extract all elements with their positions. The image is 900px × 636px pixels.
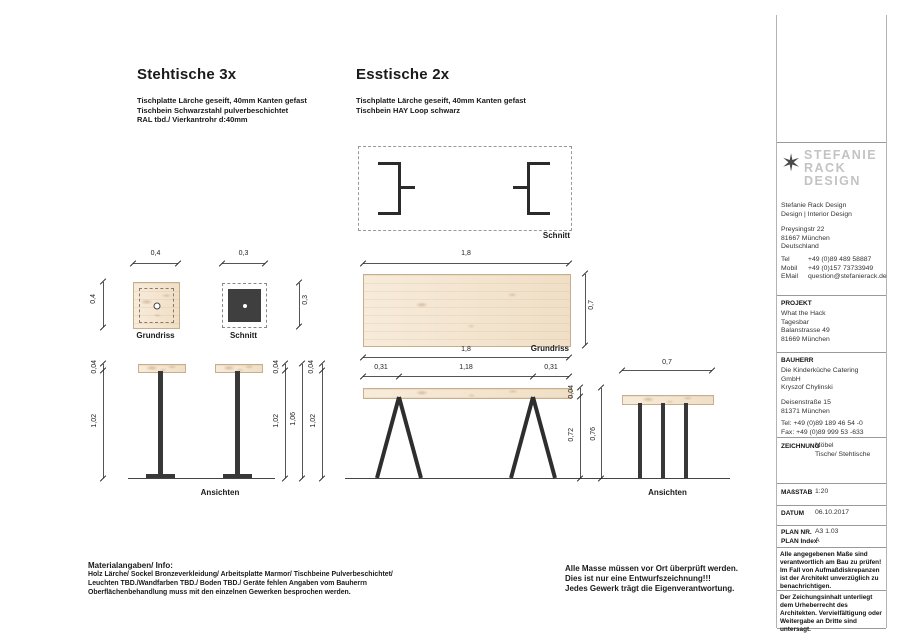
leg-profile-bar <box>401 186 415 189</box>
zeichnung-block: Möbel Tische/ Stehtische <box>815 442 870 459</box>
esstisch-side-top <box>622 395 714 405</box>
planindex-value: A <box>815 537 820 546</box>
bauherr-line: Tel: +49 (0)89 189 46 54 -0 <box>781 420 864 429</box>
notice-line: Jedes Gewerk trägt die Eigenverantwortun… <box>565 584 738 594</box>
dim-st-leg-height: 1,02 <box>273 414 280 428</box>
address-block: Preysingstr 22 81667 München Deutschland <box>781 226 830 252</box>
esstisch-elevation-top <box>363 388 572 399</box>
contact-value: +49 (0)89 489 58887 <box>808 256 871 265</box>
firm-line: Stefanie Rack Design <box>781 202 852 211</box>
address-line: 81667 München <box>781 235 830 244</box>
plannr-value: A3 1.03 <box>815 528 838 537</box>
contact-label: EMail <box>781 273 808 282</box>
notice-block: Alle Masse müssen vor Ort überprüft werd… <box>565 564 738 594</box>
spec-line: RAL tbd./ Vierkantrohr d:40mm <box>137 115 307 125</box>
projekt-line: What the Hack <box>781 310 830 319</box>
projekt-line: Balanstrasse 49 <box>781 327 830 336</box>
firm-line: Design | Interior Design <box>781 211 852 220</box>
esstisch-schnitt-box <box>358 146 572 231</box>
material-info-block: Materialangaben/ Info: Holz Lärche/ Sock… <box>88 561 393 597</box>
dim-st-plan-depth: 0,4 <box>90 294 97 304</box>
dim-line <box>103 364 104 478</box>
material-info-line: Holz Lärche/ Sockel Bronzeverkleidung/ A… <box>88 570 393 579</box>
esstische-specs: Tischplatte Lärche geseift, 40mm Kanten … <box>356 96 526 115</box>
bauherr-label: BAUHERR <box>781 357 814 364</box>
spec-line: Tischbein Schwarzstahl pulverbeschichtet <box>137 106 307 116</box>
dim-line <box>222 263 265 264</box>
titleblock-divider <box>777 352 886 353</box>
schnitt-stehtisch-label: Schnitt <box>198 331 289 340</box>
dim-es-plan-width: 1,8 <box>363 250 569 257</box>
titleblock-border-right <box>886 15 887 628</box>
titleblock-border-left <box>776 15 777 628</box>
titleblock-divider <box>777 437 886 438</box>
leg-profile-bar <box>378 212 401 215</box>
plannr-label: PLAN NR. <box>781 529 812 536</box>
titleblock-divider <box>777 142 886 143</box>
dim-line <box>133 263 178 264</box>
bauherr-line: Die Kinderküche Catering <box>781 367 858 376</box>
dim-line <box>103 282 104 327</box>
dim-es-top-thickness: 0,04 <box>568 385 575 399</box>
bauherr-line: 81371 München <box>781 408 831 417</box>
leg-center-mark <box>153 302 160 309</box>
plan-sheet: Stehtische 3x Tischplatte Lärche geseift… <box>0 0 900 636</box>
logo-star-icon: ✶ <box>781 152 801 176</box>
dim-line <box>363 376 569 377</box>
projekt-block: What the Hack Tagesbar Balanstrasse 49 8… <box>781 310 830 344</box>
leg-profile-bar <box>527 162 550 165</box>
dim-st-total-height: 1,06 <box>290 412 297 426</box>
spec-line: Tischplatte Lärche geseift, 40mm Kanten … <box>356 96 526 106</box>
grundriss-stehtisch-label: Grundriss <box>110 331 201 340</box>
stehtisch-section-fill <box>228 289 261 322</box>
contact-label: Mobil <box>781 265 808 274</box>
stehtisch-leg <box>235 371 240 475</box>
dim-st-leg-height: 1,02 <box>91 414 98 428</box>
bauherr-line: Kryszof Chylinski <box>781 384 858 393</box>
dim-es-leg-height: 0,72 <box>568 428 575 442</box>
dim-st-top-thickness: 0,04 <box>308 360 315 374</box>
esstische-title: Esstische 2x <box>356 66 449 83</box>
stehtisch-section-box <box>222 283 267 328</box>
material-info-line: Leuchten TBD./Wandfarben TBD./ Boden TBD… <box>88 579 393 588</box>
dim-line <box>585 274 586 345</box>
dim-st-plan-width: 0,4 <box>133 250 178 257</box>
dim-es-side-width: 0,7 <box>622 359 712 366</box>
datum-value: 06.10.2017 <box>815 509 849 518</box>
contact-row: Tel +49 (0)89 489 58887 <box>781 256 887 265</box>
massstab-label: MAßSTAB <box>781 489 812 496</box>
stehtisch-plan-top <box>133 282 180 329</box>
ground-line <box>345 478 730 479</box>
dim-es-leg-span: 1,18 <box>399 364 533 371</box>
titleblock-divider <box>777 295 886 296</box>
dim-line <box>363 263 569 264</box>
leg-profile-bar <box>527 212 550 215</box>
bauherr-line: Deisenstraße 15 <box>781 399 831 408</box>
dim-st-sec-width: 0,3 <box>222 250 265 257</box>
logo: STEFANIE RACK DESIGN <box>804 149 877 188</box>
bauherr-block-2: Deisenstraße 15 81371 München <box>781 399 831 416</box>
leg-profile-bar <box>527 162 530 215</box>
projekt-line: 81669 München <box>781 336 830 345</box>
dim-line <box>622 370 712 371</box>
dim-es-total-height: 0,76 <box>590 427 597 441</box>
esstisch-side-leg <box>684 403 688 478</box>
leg-profile-bar <box>513 186 527 189</box>
dim-line <box>580 388 581 478</box>
bauherr-block-1: Die Kinderküche Catering GmbH Kryszof Ch… <box>781 367 858 393</box>
titleblock-divider <box>777 483 886 484</box>
titleblock-divider <box>777 525 886 526</box>
datum-label: DATUM <box>781 510 804 517</box>
bauherr-line: Fax: +49 (0)89 999 53 -633 <box>781 429 864 438</box>
dim-line <box>302 364 303 478</box>
stehtische-specs: Tischplatte Lärche geseift, 40mm Kanten … <box>137 96 307 125</box>
esstisch-side-leg <box>661 403 665 478</box>
dim-st-leg-height: 1,02 <box>310 414 317 428</box>
contact-label: Tel <box>781 256 808 265</box>
contact-row: Mobil +49 (0)157 73733949 <box>781 265 887 274</box>
zeichnung-label: ZEICHNUNG <box>781 443 820 450</box>
contact-row: EMail question@stefanierack.de <box>781 273 887 282</box>
material-info-line: Oberflächenbehandlung muss mit den einze… <box>88 588 393 597</box>
address-line: Preysingstr 22 <box>781 226 830 235</box>
zeichnung-line: Tische/ Stehtische <box>815 451 870 460</box>
esstisch-side-leg <box>638 403 642 478</box>
bauherr-block-3: Tel: +49 (0)89 189 46 54 -0 Fax: +49 (0)… <box>781 420 864 437</box>
titleblock-divider <box>777 547 886 548</box>
leg-center-mark <box>243 304 247 308</box>
dim-st-sec-depth: 0,3 <box>302 295 309 305</box>
notice-line: Dies ist nur eine Entwurfszeichnung!!! <box>565 574 738 584</box>
dim-line <box>322 364 323 478</box>
projekt-line: Tagesbar <box>781 319 830 328</box>
schnitt-top-label: Schnitt <box>470 231 570 240</box>
titleblock-note-2: Der Zeichungsinhalt unterliegt dem Urheb… <box>780 594 886 634</box>
dim-st-top-thickness: 0,04 <box>91 360 98 374</box>
contact-value: +49 (0)157 73733949 <box>808 265 873 274</box>
firm-block: Stefanie Rack Design Design | Interior D… <box>781 202 852 219</box>
dim-es-offset-left: 0,31 <box>363 364 399 371</box>
planindex-label: PLAN Index <box>781 538 817 545</box>
titleblock-divider <box>777 505 886 506</box>
contact-value: question@stefanierack.de <box>808 273 887 282</box>
ansichten-esstisch-label: Ansichten <box>625 488 710 497</box>
grundriss-esstisch-label: Grundriss <box>489 344 569 353</box>
massstab-value: 1:20 <box>815 488 828 497</box>
dim-st-top-thickness: 0,04 <box>273 360 280 374</box>
zeichnung-line: Möbel <box>815 442 870 451</box>
logo-line: DESIGN <box>804 175 877 188</box>
stehtisch-leg <box>158 371 163 475</box>
ground-line <box>128 478 275 479</box>
notice-line: Alle Masse müssen vor Ort überprüft werd… <box>565 564 738 574</box>
material-info-title: Materialangaben/ Info: <box>88 561 393 570</box>
spec-line: Tischplatte Lärche geseift, 40mm Kanten … <box>137 96 307 106</box>
stehtische-title: Stehtische 3x <box>137 66 236 83</box>
dim-line <box>601 388 602 478</box>
dim-line <box>285 364 286 478</box>
titleblock-note-1: Alle angegebenen Maße sind verantwortlic… <box>780 551 886 591</box>
ansichten-stehtische-label: Ansichten <box>165 488 275 497</box>
dim-line <box>299 283 300 326</box>
address-line: Deutschland <box>781 243 830 252</box>
dim-line <box>363 357 569 358</box>
bauherr-line: GmbH <box>781 376 858 385</box>
esstisch-plan-top <box>363 274 571 347</box>
dim-es-offset-right: 0,31 <box>533 364 569 371</box>
contact-block: Tel +49 (0)89 489 58887 Mobil +49 (0)157… <box>781 256 887 282</box>
dim-es-plan-depth: 0,7 <box>588 300 595 310</box>
projekt-label: PROJEKT <box>781 300 812 307</box>
spec-line: Tischbein HAY Loop schwarz <box>356 106 526 116</box>
